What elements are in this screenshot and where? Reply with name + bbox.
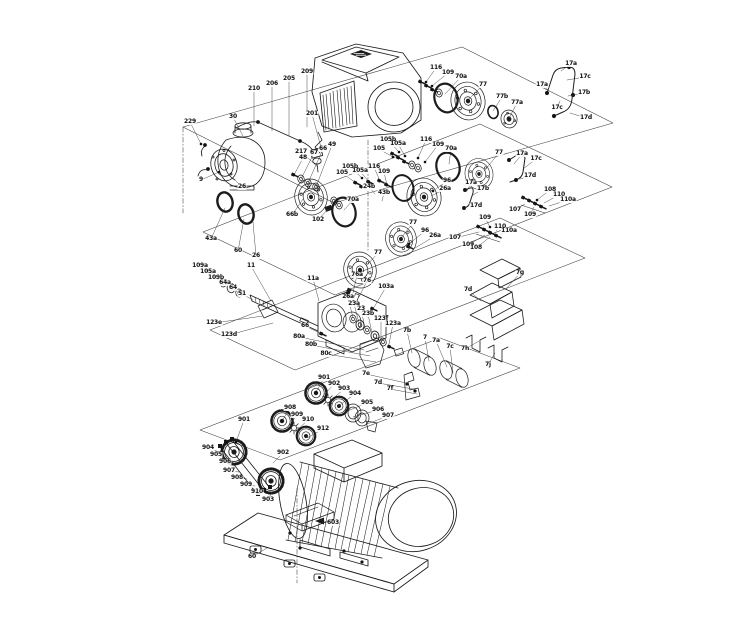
screw-dot: [379, 180, 382, 183]
screw-dot: [404, 155, 407, 158]
leader-line-80c: [326, 354, 376, 362]
leader-line-116: [426, 68, 436, 82]
leader-line-105a: [398, 144, 405, 156]
leader-line-7d: [468, 290, 481, 301]
leader-line-17b: [473, 189, 483, 195]
leader-line-109: [485, 218, 490, 227]
leader-line-17c: [557, 101, 560, 108]
screw-dot: [398, 151, 401, 154]
leader-line-66: [308, 149, 323, 183]
leader-line-123a: [389, 324, 393, 344]
leader-line-77: [368, 253, 378, 264]
coupling-center-row: [269, 380, 377, 447]
leader-line-107: [515, 204, 525, 210]
leader-line-123d: [229, 323, 273, 335]
base-plate-drawing: [224, 513, 428, 592]
leader-line-66b: [292, 199, 303, 215]
leader-line-17d: [470, 204, 476, 206]
screw-dot: [355, 182, 358, 185]
leader-line-66: [305, 326, 322, 334]
leader-line-17a: [514, 154, 522, 164]
leader-line-110: [496, 227, 500, 231]
screw-dot: [361, 177, 364, 180]
leader-lines-layer: [190, 64, 586, 557]
leader-line-217: [301, 152, 318, 167]
leader-line-26a: [415, 236, 435, 248]
leader-line-103a: [373, 287, 386, 309]
leader-line-102: [318, 209, 328, 220]
leader-line-109a: [200, 266, 208, 271]
leader-line-26: [253, 222, 256, 256]
screw-dot: [417, 157, 420, 160]
leader-line-229: [190, 122, 201, 144]
leader-line-7a: [436, 341, 447, 367]
leader-line-17b: [568, 93, 584, 96]
screw-dot: [408, 243, 411, 246]
sleeve-chain-drawing: [349, 314, 470, 400]
screw-dot: [425, 81, 428, 84]
leader-line-96: [433, 181, 447, 191]
screw-dot: [432, 190, 435, 193]
leader-line-7j: [488, 353, 495, 365]
sheet-metal-guards: [466, 259, 524, 362]
screw-dot: [281, 420, 284, 423]
leader-line-70a: [344, 200, 353, 210]
exploded-drawing: [0, 0, 752, 632]
screw-dot: [200, 143, 203, 146]
leader-line-105b: [388, 140, 399, 152]
screw-dot: [221, 452, 224, 455]
screw-dot: [315, 391, 318, 394]
screw-dot: [489, 226, 492, 229]
leader-line-51: [242, 294, 253, 300]
induction-motor-drawing: [274, 440, 466, 566]
leader-line-11: [251, 266, 271, 301]
screw-dot: [431, 85, 434, 88]
screw-dot: [536, 199, 539, 202]
leader-line-105a: [360, 171, 369, 182]
leader-line-108: [476, 237, 490, 248]
coupling-bottom-left: [218, 437, 286, 496]
leader-line-7g: [506, 273, 520, 289]
leader-line-80a: [299, 337, 364, 350]
drive-motor-drawing: [312, 44, 421, 137]
screw-dot: [386, 184, 389, 187]
leader-line-107: [455, 232, 479, 238]
screw-dot: [321, 333, 324, 336]
leader-line-7e: [366, 374, 406, 383]
leader-line-77: [401, 223, 413, 238]
leader-line-108: [537, 190, 550, 200]
boundary-lines: [183, 47, 613, 583]
diagram-stage: 2293021020620520920121792643a60264867664…: [0, 0, 752, 632]
screw-dot: [218, 171, 221, 174]
leader-line-7f: [390, 389, 417, 394]
screw-dot: [235, 441, 238, 444]
leader-line-907: [229, 471, 239, 472]
leader-line-48: [294, 158, 303, 175]
leader-line-105: [342, 173, 356, 183]
leader-line-60: [238, 219, 244, 251]
leader-line-123e: [214, 316, 263, 323]
screw-dot: [293, 174, 296, 177]
leader-line-26a: [348, 297, 353, 318]
seal-kit-row-b: [382, 150, 496, 259]
leader-line-109: [468, 235, 485, 245]
leader-line-116: [418, 140, 426, 158]
leader-line-901: [236, 420, 244, 442]
screw-dot: [368, 181, 371, 184]
leader-line-110a: [501, 231, 509, 234]
screw-dot: [392, 156, 395, 159]
shaft-assembly-drawing: [205, 268, 386, 368]
leader-line-17c: [567, 77, 585, 80]
screw-dot: [424, 161, 427, 164]
leader-line-70a: [449, 149, 451, 164]
leader-line-43b: [382, 193, 384, 201]
leader-line-904: [208, 448, 222, 453]
leader-line-17d: [570, 113, 586, 118]
leader-line-908: [237, 478, 247, 479]
leader-line-109: [425, 145, 438, 162]
leader-line-116: [374, 167, 380, 181]
leader-line-903: [329, 389, 344, 402]
leader-line-105b: [350, 167, 362, 178]
leader-line-30: [233, 117, 243, 136]
leader-line-67: [301, 153, 314, 179]
leader-line-43a: [211, 208, 225, 239]
leader-line-110: [544, 195, 559, 203]
